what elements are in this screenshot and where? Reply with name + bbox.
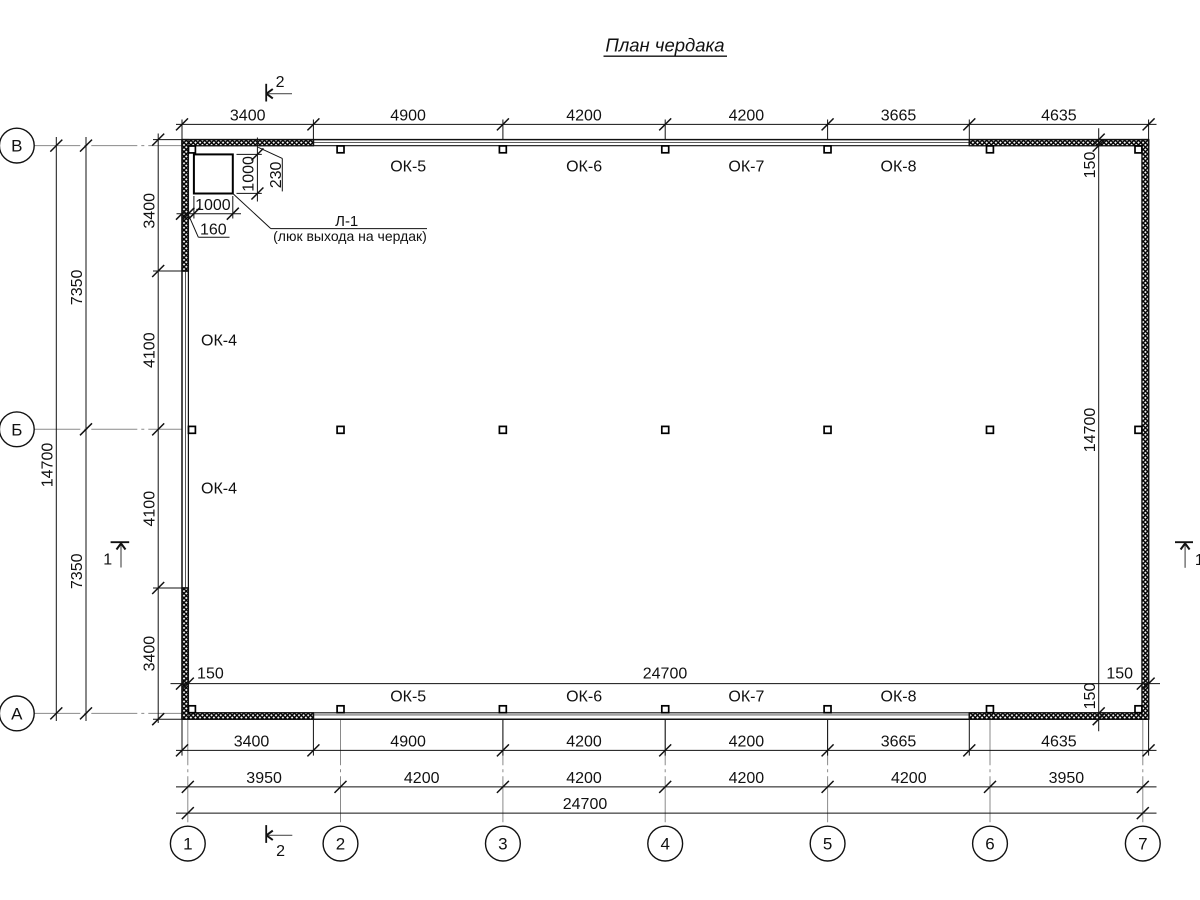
svg-text:4200: 4200 [566,733,602,750]
svg-text:4900: 4900 [390,733,426,750]
svg-text:Б: Б [11,420,22,439]
svg-text:160: 160 [200,222,227,239]
svg-text:2: 2 [276,74,285,91]
svg-text:4: 4 [660,835,669,854]
svg-text:3400: 3400 [141,636,158,672]
svg-text:150: 150 [1082,152,1099,179]
svg-text:ОК-4: ОК-4 [201,332,237,349]
svg-text:4200: 4200 [566,770,602,787]
svg-text:ОК-6: ОК-6 [566,159,602,176]
svg-text:150: 150 [1082,683,1099,710]
svg-text:1000: 1000 [195,197,231,214]
svg-text:1: 1 [103,552,112,569]
svg-text:1: 1 [1195,552,1200,569]
svg-text:4635: 4635 [1041,107,1077,124]
svg-text:4900: 4900 [390,107,426,124]
svg-text:3665: 3665 [881,733,917,750]
svg-text:ОК-8: ОК-8 [881,689,917,706]
svg-text:4200: 4200 [729,770,765,787]
svg-text:7350: 7350 [69,270,86,306]
svg-text:3400: 3400 [141,193,158,229]
svg-text:4200: 4200 [729,107,765,124]
svg-text:14700: 14700 [1082,408,1099,453]
svg-text:ОК-7: ОК-7 [728,159,764,176]
svg-text:7350: 7350 [69,553,86,589]
svg-text:1000: 1000 [241,156,258,192]
svg-text:4635: 4635 [1041,733,1077,750]
svg-text:4200: 4200 [729,733,765,750]
svg-text:4200: 4200 [891,770,927,787]
svg-text:4100: 4100 [141,491,158,527]
svg-text:ОК-4: ОК-4 [201,480,237,497]
svg-text:4200: 4200 [404,770,440,787]
svg-text:6: 6 [985,835,994,854]
svg-text:ОК-6: ОК-6 [566,689,602,706]
svg-text:3950: 3950 [1049,770,1085,787]
svg-text:1: 1 [183,835,192,854]
svg-text:3: 3 [498,835,507,854]
svg-text:ОК-8: ОК-8 [881,159,917,176]
svg-text:3665: 3665 [881,107,917,124]
svg-text:24700: 24700 [563,796,608,813]
svg-text:ОК-5: ОК-5 [390,159,426,176]
svg-text:7: 7 [1138,835,1147,854]
svg-text:3950: 3950 [246,770,282,787]
svg-text:3400: 3400 [230,107,266,124]
svg-text:2: 2 [336,835,345,854]
svg-text:24700: 24700 [643,666,688,683]
svg-text:ОК-7: ОК-7 [728,689,764,706]
svg-text:(люк выхода на чердак): (люк выхода на чердак) [273,228,427,244]
svg-text:План чердака: План чердака [605,34,724,55]
svg-text:В: В [11,137,22,156]
svg-text:А: А [11,705,23,724]
svg-text:150: 150 [1106,666,1133,683]
svg-text:2: 2 [276,843,285,860]
svg-text:4200: 4200 [566,107,602,124]
svg-text:14700: 14700 [40,443,57,488]
svg-text:ОК-5: ОК-5 [390,689,426,706]
svg-text:230: 230 [268,161,285,188]
svg-text:3400: 3400 [234,733,270,750]
svg-text:150: 150 [197,666,224,683]
svg-text:4100: 4100 [141,332,158,368]
svg-text:5: 5 [823,835,832,854]
